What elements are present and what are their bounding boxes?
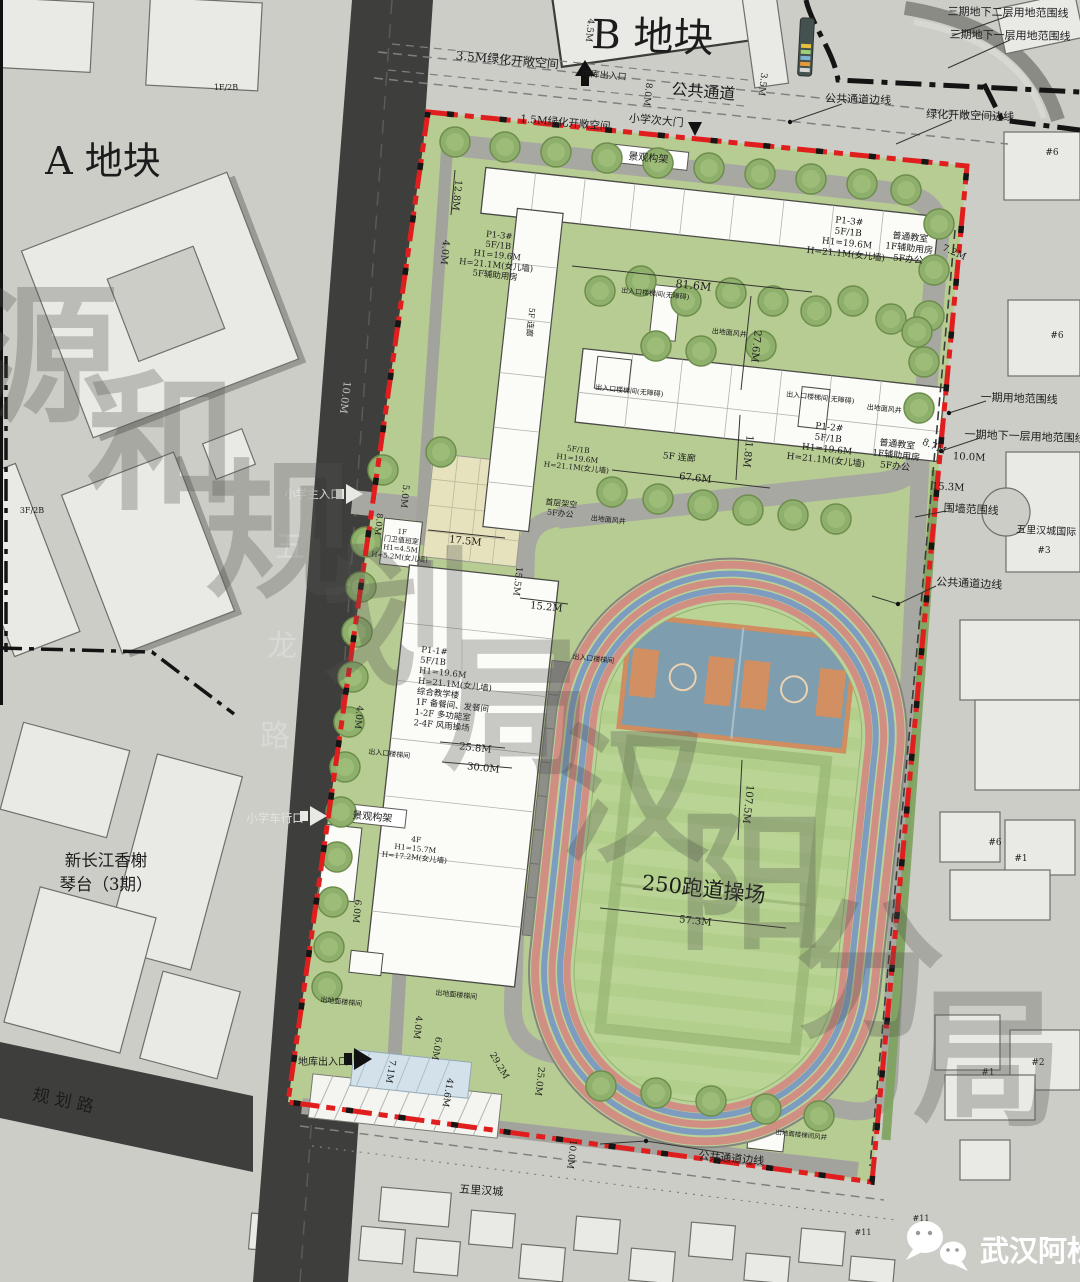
bldg-no: #11: [855, 1228, 872, 1237]
bldg-no: #6: [1045, 148, 1059, 158]
bldg-no: 3F/2B: [20, 506, 44, 515]
bldg-no: #11: [913, 1214, 930, 1223]
label-garage-entrance: 地库出入口: [298, 1055, 348, 1068]
site-plan-map: 武汉阿松 B 地块A 地块三期地下二层用地范围线三期地下一层用地范围线3.5M绿…: [0, 0, 1080, 1282]
site-plan-screenshot: 武汉阿松 B 地块A 地块三期地下二层用地范围线三期地下一层用地范围线3.5M绿…: [0, 0, 1080, 1282]
label-phase1-boundary: 一期用地范围线: [980, 390, 1057, 407]
small-block: [349, 950, 383, 975]
label-passage-edge-top: 公共通道边线: [825, 91, 891, 107]
label-wall-boundary: 围墙范围线: [943, 501, 999, 518]
bldg-no: #6: [988, 838, 1002, 848]
dim-label: 15.3M: [932, 481, 965, 494]
label-phase3-basement1: 三期地下一层用地范围线: [949, 27, 1070, 43]
label-ground-floor-open: 首层架空5F办公: [544, 496, 578, 519]
car-lift-strip: [797, 18, 814, 77]
plot-b-label: B 地块: [591, 12, 715, 62]
road-wulong-char: 路: [260, 719, 290, 754]
label-phase3-basement2: 三期地下二层用地范围线: [947, 4, 1068, 20]
dim-label: 10.0M: [953, 451, 986, 464]
road-wulong-char: 龙: [267, 629, 297, 664]
bldg-no: 1F/2B: [214, 83, 238, 92]
label-vehicle-entrance: 小学车行口: [246, 811, 304, 825]
plot-a-label: A 地块: [44, 139, 161, 183]
wechat-badge-label: 武汉阿松: [980, 1234, 1080, 1268]
watermark-char: 局: [913, 974, 1063, 1148]
bldg-no: #3: [1037, 546, 1051, 556]
bldg-no: #6: [1050, 331, 1064, 341]
bldg-no: #1: [1014, 854, 1027, 864]
